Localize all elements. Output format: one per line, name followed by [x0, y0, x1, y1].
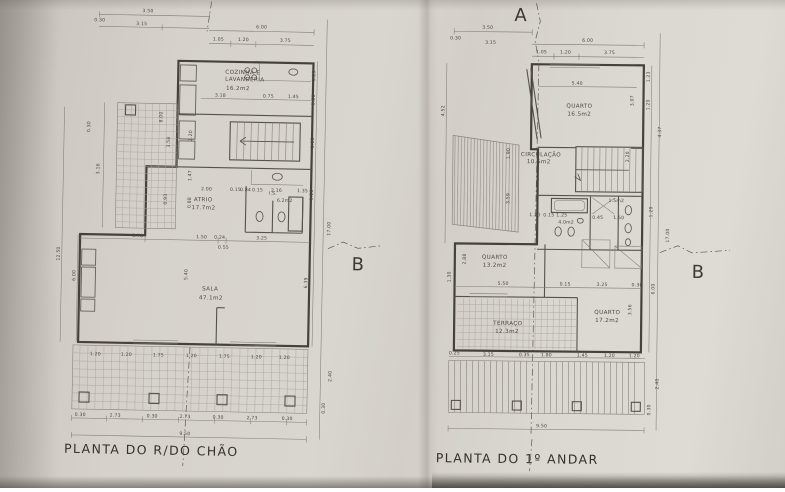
svg-text:6.00: 6.00 — [650, 283, 656, 294]
svg-text:3.75: 3.75 — [604, 50, 615, 56]
section-marker-b-left: B — [327, 242, 382, 276]
svg-text:1.75: 1.75 — [153, 352, 164, 358]
svg-text:3.75: 3.75 — [280, 38, 291, 44]
terrace-first: TERRAÇO 12.3m2 — [457, 298, 578, 349]
svg-text:0.24: 0.24 — [214, 235, 225, 241]
svg-text:6.39: 6.39 — [303, 277, 309, 288]
svg-text:3.15: 3.15 — [485, 40, 496, 46]
svg-text:3.50: 3.50 — [482, 25, 493, 31]
svg-text:1.20: 1.20 — [90, 351, 101, 357]
svg-text:1.45: 1.45 — [577, 353, 588, 359]
svg-text:1.05: 1.05 — [536, 49, 547, 55]
svg-text:0.55: 0.55 — [218, 245, 229, 251]
svg-text:1.50: 1.50 — [613, 215, 624, 221]
bedroom-1: 5.40 QUARTO 16.5m2 — [526, 64, 644, 148]
svg-text:6.00: 6.00 — [582, 38, 593, 44]
svg-text:B: B — [351, 254, 364, 275]
svg-text:1.20: 1.20 — [121, 352, 132, 358]
svg-text:10.5m2: 10.5m2 — [527, 159, 551, 165]
svg-text:12.3m2: 12.3m2 — [495, 329, 519, 335]
svg-text:17.00: 17.00 — [665, 228, 671, 242]
roof-hatch-area: 1.90 3.59 — [452, 135, 519, 232]
svg-text:0.93: 0.93 — [163, 194, 169, 205]
svg-text:3.56: 3.56 — [627, 304, 633, 315]
svg-text:2.20: 2.20 — [625, 151, 631, 162]
svg-text:2.73: 2.73 — [247, 415, 258, 421]
svg-text:0.30: 0.30 — [147, 413, 158, 419]
svg-text:2.73: 2.73 — [110, 413, 121, 419]
pergola-slats — [448, 360, 645, 414]
svg-text:LAVANDERIA: LAVANDERIA — [225, 77, 265, 84]
svg-text:1.50: 1.50 — [196, 234, 207, 240]
svg-text:8.00: 8.00 — [158, 111, 164, 122]
svg-text:0.30: 0.30 — [94, 17, 105, 23]
svg-text:3.07: 3.07 — [629, 95, 635, 106]
svg-text:5.40: 5.40 — [572, 81, 583, 87]
svg-text:1.20: 1.20 — [186, 353, 197, 359]
svg-text:1.5m2: 1.5m2 — [608, 198, 624, 204]
svg-text:3.25: 3.25 — [256, 235, 267, 241]
svg-text:SALA: SALA — [202, 286, 218, 292]
svg-text:0.30: 0.30 — [632, 282, 643, 288]
svg-text:4.0m2: 4.0m2 — [558, 219, 574, 225]
svg-text:2.88: 2.88 — [462, 253, 468, 264]
svg-text:1.47: 1.47 — [187, 170, 193, 181]
svg-text:47.1m2: 47.1m2 — [199, 295, 223, 301]
svg-text:13.2m2: 13.2m2 — [483, 263, 507, 269]
svg-text:0.30: 0.30 — [213, 415, 224, 421]
svg-text:0.30: 0.30 — [646, 404, 652, 415]
svg-text:3.16: 3.16 — [95, 163, 101, 174]
svg-text:2.73: 2.73 — [180, 414, 191, 420]
svg-text:TERRAÇO: TERRAÇO — [492, 321, 523, 327]
svg-text:3.15: 3.15 — [483, 352, 494, 358]
svg-text:0.30: 0.30 — [321, 403, 327, 414]
svg-text:17.2m2: 17.2m2 — [595, 318, 619, 324]
svg-text:1.20: 1.20 — [629, 353, 640, 359]
svg-text:6.2m2: 6.2m2 — [277, 198, 293, 204]
svg-text:17.00: 17.00 — [326, 222, 332, 236]
first-floor-caption: PLANTA DO 1º ANDAR — [436, 450, 599, 467]
svg-text:0.25: 0.25 — [449, 350, 460, 356]
paper-bottom-right-shadow — [432, 472, 785, 488]
svg-text:1.30: 1.30 — [447, 271, 453, 282]
svg-text:1.20: 1.20 — [311, 94, 317, 105]
svg-text:A: A — [514, 5, 527, 26]
svg-text:16.2m2: 16.2m2 — [226, 86, 250, 92]
svg-text:ATRIO: ATRIO — [194, 197, 213, 203]
svg-text:17.7m2: 17.7m2 — [192, 205, 216, 211]
svg-text:1.23: 1.23 — [311, 70, 317, 81]
svg-text:1.90: 1.90 — [506, 148, 512, 159]
dim-chain-top-first: 3.50 0.30 3.15 6.00 1.05 1.20 3.75 — [450, 24, 644, 60]
dim-right-column-first: 1.23 1.20 3.07 2.20 4.37 1.20 17.00 6.00… — [622, 33, 673, 430]
svg-text:9.50: 9.50 — [179, 431, 190, 437]
svg-text:QUARTO: QUARTO — [482, 255, 508, 261]
svg-text:3.25: 3.25 — [597, 282, 608, 288]
svg-text:12.50: 12.50 — [56, 246, 62, 260]
svg-text:3.66: 3.66 — [310, 137, 316, 148]
svg-text:5.50: 5.50 — [498, 281, 509, 287]
sala-area: SALA 47.1m2 5.40 — [80, 249, 278, 346]
svg-text:0.84: 0.84 — [240, 187, 251, 193]
paper-fold-shadow — [418, 0, 438, 488]
svg-text:3.58: 3.58 — [166, 137, 172, 148]
svg-text:1.20: 1.20 — [309, 189, 315, 200]
bathrooms-first: 4.0m2 1.5m2 1.20 0.15 1.25 0.45 1.50 — [529, 195, 643, 250]
svg-text:0.30: 0.30 — [86, 121, 92, 132]
svg-text:1.80: 1.80 — [541, 352, 552, 358]
svg-text:16.5m2: 16.5m2 — [567, 112, 591, 118]
dim-chain-bottom-first: 0.25 3.15 0.35 1.80 1.45 1.20 1.20 9.50 — [448, 350, 645, 433]
stairs-ground — [230, 122, 301, 161]
svg-text:3.59: 3.59 — [505, 193, 511, 204]
svg-text:3.18: 3.18 — [215, 93, 226, 99]
svg-text:4.37: 4.37 — [657, 126, 663, 137]
svg-text:0.45: 0.45 — [592, 215, 603, 221]
svg-text:2.20: 2.20 — [188, 130, 194, 141]
svg-text:3.78: 3.78 — [132, 233, 143, 239]
svg-text:1.20: 1.20 — [648, 206, 654, 217]
svg-text:1.45: 1.45 — [288, 94, 299, 100]
section-line-a-ground — [183, 1, 212, 466]
svg-text:1.20: 1.20 — [560, 49, 571, 55]
circulation-stairs: CIRCULAÇÃO 10.5m2 — [521, 146, 643, 192]
ground-floor-caption: PLANTA DO R/DO CHÃO — [64, 441, 239, 459]
svg-text:1.20: 1.20 — [604, 353, 615, 359]
svg-text:9.50: 9.50 — [536, 423, 547, 429]
svg-text:5.40: 5.40 — [183, 269, 189, 280]
svg-text:1.20: 1.20 — [238, 37, 249, 43]
svg-text:3.50: 3.50 — [142, 8, 153, 14]
svg-text:1.75: 1.75 — [219, 354, 230, 360]
svg-text:2.40: 2.40 — [327, 371, 333, 382]
svg-text:0.15: 0.15 — [252, 187, 263, 193]
dim-chain-top: 3.50 0.30 3.15 6.00 1.05 1.20 3.75 — [94, 7, 315, 48]
dim-right-column: 1.23 1.20 3.66 1.20 17.00 6.39 2.40 0.30 — [300, 19, 340, 440]
svg-text:2.00: 2.00 — [201, 186, 212, 192]
svg-text:COZINHA E: COZINHA E — [225, 70, 260, 77]
svg-text:0.30: 0.30 — [75, 412, 86, 418]
first-floor-plan: A 3.50 0.30 3.15 6.00 1.05 1.20 3.75 5.4… — [427, 0, 785, 490]
svg-text:6.00: 6.00 — [256, 24, 267, 30]
svg-text:2.40: 2.40 — [654, 378, 660, 389]
svg-text:0.15: 0.15 — [543, 212, 554, 218]
svg-text:QUARTO: QUARTO — [594, 310, 620, 316]
svg-text:6.00: 6.00 — [71, 270, 77, 281]
svg-text:1.05: 1.05 — [213, 36, 224, 42]
svg-text:4.52: 4.52 — [440, 105, 446, 116]
svg-text:1.20: 1.20 — [645, 99, 651, 110]
svg-text:2.16: 2.16 — [271, 188, 282, 194]
section-marker-b-right: B — [660, 246, 730, 284]
svg-text:0.30: 0.30 — [282, 416, 293, 422]
svg-text:QUARTO: QUARTO — [566, 104, 592, 110]
svg-text:1.23: 1.23 — [646, 71, 652, 82]
svg-text:0.30: 0.30 — [450, 35, 461, 41]
scanned-drawing-sheet: 3.50 0.30 3.15 6.00 1.05 1.20 3.75 COZIN… — [0, 0, 785, 488]
svg-text:B: B — [692, 262, 705, 283]
svg-text:0.15: 0.15 — [560, 282, 571, 288]
svg-text:0.88: 0.88 — [187, 197, 193, 208]
svg-text:1.35: 1.35 — [297, 188, 308, 194]
svg-text:1.20: 1.20 — [279, 355, 290, 361]
svg-text:3.15: 3.15 — [136, 21, 147, 27]
svg-text:1.25: 1.25 — [556, 212, 567, 218]
svg-text:1.20: 1.20 — [251, 354, 262, 360]
svg-text:0.35: 0.35 — [519, 352, 530, 358]
ground-floor-plan: 3.50 0.30 3.15 6.00 1.05 1.20 3.75 COZIN… — [35, 0, 439, 492]
svg-text:0.75: 0.75 — [263, 93, 274, 99]
svg-text:1.20: 1.20 — [529, 212, 540, 218]
svg-text:CIRCULAÇÃO: CIRCULAÇÃO — [521, 151, 561, 158]
